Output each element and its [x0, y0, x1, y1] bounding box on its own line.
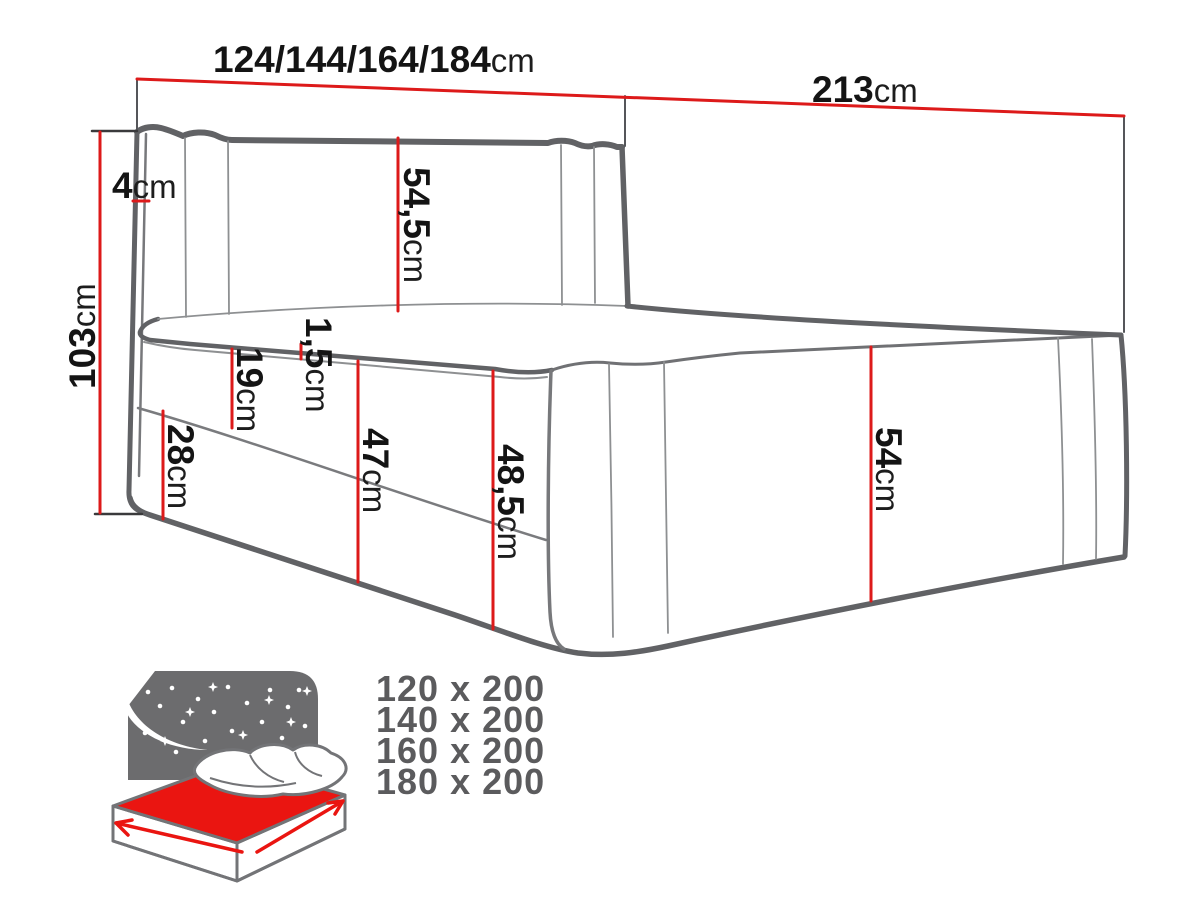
available-sizes-list: 120 x 200 140 x 200 160 x 200 180 x 200: [376, 668, 545, 802]
size-option-180x200: 180 x 200: [376, 761, 545, 802]
mattress-piping-seam: [144, 342, 547, 379]
headboard-panel-label: 54,5cm: [396, 167, 437, 283]
corner-panel-seams: [609, 362, 668, 637]
bed-size-icon: [113, 671, 346, 881]
far-right-edge: [1121, 335, 1127, 556]
topper-edge-label: 1,5cm: [298, 317, 339, 412]
bed-icon-duvet-pillows: [194, 745, 346, 797]
headboard-thickness-label: 4cm: [112, 165, 177, 206]
base-bottom-edge: [130, 498, 1124, 654]
front-48-5-label: 48,5cm: [490, 444, 531, 560]
height-dimension-label: 103cm: [62, 283, 103, 389]
bed-dimension-diagram: 124/144/164/184cm 213cm 103cm 4cm 54,5cm…: [0, 0, 1200, 900]
width-length-ticks: [137, 79, 1124, 332]
mattress-far-edge: [627, 306, 1121, 335]
mattress-height-label: 19cm: [229, 347, 270, 432]
side-top-edge: [552, 335, 1121, 370]
dim-line-width-length: [137, 79, 1124, 116]
far-corner-seams: [1058, 338, 1096, 564]
headboard-top-edge: [137, 127, 622, 147]
bed-dimension-diagram-page: 124/144/164/184cm 213cm 103cm 4cm 54,5cm…: [0, 0, 1200, 900]
base-height-label: 28cm: [160, 424, 201, 509]
headboard-right-edge: [622, 147, 628, 306]
dimension-label-group: 124/144/164/184cm 213cm 103cm 4cm 54,5cm…: [62, 39, 918, 560]
width-dimension-label: 124/144/164/184cm: [213, 39, 535, 80]
corner-panel-edge: [548, 371, 564, 649]
headboard-channel-seams: [185, 138, 595, 317]
bed-outline-drawing: [129, 127, 1127, 654]
length-dimension-label: 213cm: [812, 69, 918, 110]
front-47-label: 47cm: [355, 428, 396, 513]
side-54-label: 54cm: [868, 427, 909, 512]
